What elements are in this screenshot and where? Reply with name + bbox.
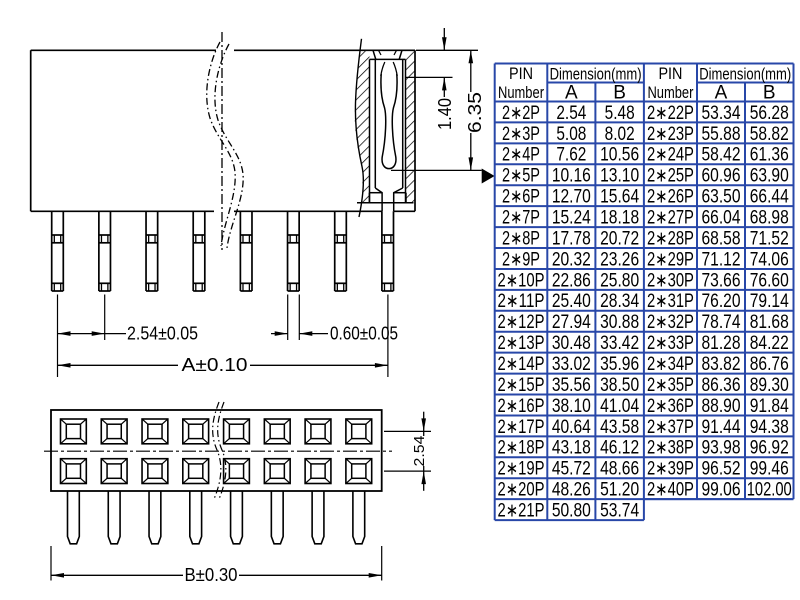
svg-text:86.36: 86.36: [702, 375, 741, 396]
svg-text:2∗25P: 2∗25P: [647, 166, 694, 187]
svg-text:2∗21P: 2∗21P: [498, 501, 545, 522]
svg-text:99.06: 99.06: [702, 480, 741, 501]
svg-text:8.02: 8.02: [605, 124, 635, 145]
svg-text:2∗30P: 2∗30P: [647, 270, 694, 291]
svg-text:38.10: 38.10: [552, 396, 591, 417]
svg-text:2∗39P: 2∗39P: [647, 459, 694, 480]
svg-text:68.98: 68.98: [750, 207, 789, 228]
svg-text:22.86: 22.86: [552, 270, 591, 291]
svg-text:2.54±0.05: 2.54±0.05: [127, 324, 198, 344]
svg-text:20.32: 20.32: [552, 249, 591, 270]
svg-text:2∗29P: 2∗29P: [647, 249, 694, 270]
svg-text:23.26: 23.26: [600, 249, 639, 270]
svg-text:73.66: 73.66: [702, 270, 741, 291]
svg-text:2∗3P: 2∗3P: [502, 124, 540, 145]
svg-text:2∗15P: 2∗15P: [498, 375, 545, 396]
svg-text:15.24: 15.24: [552, 207, 591, 228]
svg-text:43.18: 43.18: [552, 438, 591, 459]
svg-text:B: B: [613, 83, 626, 104]
svg-text:2.54: 2.54: [556, 103, 586, 124]
svg-text:56.28: 56.28: [750, 103, 789, 124]
svg-text:Number: Number: [647, 83, 693, 102]
svg-text:17.78: 17.78: [552, 228, 591, 249]
svg-text:2∗23P: 2∗23P: [647, 124, 694, 145]
svg-text:2∗14P: 2∗14P: [498, 354, 545, 375]
svg-text:2∗37P: 2∗37P: [647, 417, 694, 438]
svg-text:102.00: 102.00: [747, 480, 792, 501]
svg-text:Dimension(mm): Dimension(mm): [699, 64, 791, 83]
svg-text:2∗26P: 2∗26P: [647, 187, 694, 208]
svg-text:2∗27P: 2∗27P: [647, 207, 694, 228]
svg-text:18.18: 18.18: [600, 207, 639, 228]
svg-text:PIN: PIN: [658, 64, 682, 83]
svg-text:46.12: 46.12: [600, 438, 639, 459]
svg-text:2∗6P: 2∗6P: [502, 187, 540, 208]
svg-text:58.42: 58.42: [702, 145, 741, 166]
svg-text:7.62: 7.62: [556, 145, 586, 166]
svg-text:2∗38P: 2∗38P: [647, 438, 694, 459]
svg-text:A: A: [565, 83, 578, 104]
svg-text:A: A: [715, 83, 728, 104]
svg-text:25.40: 25.40: [552, 291, 591, 312]
svg-text:43.58: 43.58: [600, 417, 639, 438]
svg-text:12.70: 12.70: [552, 187, 591, 208]
svg-text:35.96: 35.96: [600, 354, 639, 375]
svg-text:66.44: 66.44: [750, 187, 789, 208]
svg-text:83.82: 83.82: [702, 354, 741, 375]
svg-text:2∗24P: 2∗24P: [647, 145, 694, 166]
svg-text:2∗17P: 2∗17P: [498, 417, 545, 438]
svg-text:33.02: 33.02: [552, 354, 591, 375]
svg-text:B±0.30: B±0.30: [185, 565, 238, 585]
svg-text:B: B: [763, 83, 776, 104]
svg-text:78.74: 78.74: [702, 312, 741, 333]
svg-text:27.94: 27.94: [552, 312, 591, 333]
svg-text:2∗33P: 2∗33P: [647, 333, 694, 354]
svg-text:2∗35P: 2∗35P: [647, 375, 694, 396]
svg-text:88.90: 88.90: [702, 396, 741, 417]
svg-text:93.98: 93.98: [702, 438, 741, 459]
svg-text:Number: Number: [498, 83, 544, 102]
svg-text:30.88: 30.88: [600, 312, 639, 333]
svg-text:91.84: 91.84: [750, 396, 789, 417]
svg-text:2.54: 2.54: [411, 436, 428, 467]
svg-text:2∗16P: 2∗16P: [498, 396, 545, 417]
svg-text:6.35: 6.35: [465, 92, 485, 133]
svg-text:2∗7P: 2∗7P: [502, 207, 540, 228]
svg-text:2∗32P: 2∗32P: [647, 312, 694, 333]
svg-text:53.34: 53.34: [702, 103, 741, 124]
svg-text:5.48: 5.48: [605, 103, 635, 124]
svg-text:60.96: 60.96: [702, 166, 741, 187]
svg-text:40.64: 40.64: [552, 417, 591, 438]
svg-text:2∗20P: 2∗20P: [498, 480, 545, 501]
svg-text:2∗4P: 2∗4P: [502, 145, 540, 166]
svg-text:51.20: 51.20: [600, 480, 639, 501]
svg-text:1.40: 1.40: [435, 98, 455, 130]
svg-text:94.38: 94.38: [750, 417, 789, 438]
svg-text:86.76: 86.76: [750, 354, 789, 375]
svg-text:66.04: 66.04: [702, 207, 741, 228]
svg-text:2∗34P: 2∗34P: [647, 354, 694, 375]
svg-text:Dimension(mm): Dimension(mm): [550, 64, 642, 83]
svg-text:38.50: 38.50: [600, 375, 639, 396]
svg-text:A±0.10: A±0.10: [182, 355, 248, 375]
svg-text:58.82: 58.82: [750, 124, 789, 145]
svg-text:20.72: 20.72: [600, 228, 639, 249]
svg-text:61.36: 61.36: [750, 145, 789, 166]
svg-text:63.90: 63.90: [750, 166, 789, 187]
svg-text:96.92: 96.92: [750, 438, 789, 459]
svg-text:76.60: 76.60: [750, 270, 789, 291]
svg-text:2∗28P: 2∗28P: [647, 228, 694, 249]
svg-text:10.16: 10.16: [552, 166, 591, 187]
svg-text:79.14: 79.14: [750, 291, 789, 312]
svg-text:2∗36P: 2∗36P: [647, 396, 694, 417]
svg-text:30.48: 30.48: [552, 333, 591, 354]
svg-text:41.04: 41.04: [600, 396, 639, 417]
svg-text:2∗10P: 2∗10P: [498, 270, 545, 291]
svg-text:81.28: 81.28: [702, 333, 741, 354]
svg-text:99.46: 99.46: [750, 459, 789, 480]
svg-text:2∗12P: 2∗12P: [498, 312, 545, 333]
svg-text:76.20: 76.20: [702, 291, 741, 312]
svg-text:2∗9P: 2∗9P: [502, 249, 540, 270]
svg-text:2∗11P: 2∗11P: [498, 291, 545, 312]
svg-text:55.88: 55.88: [702, 124, 741, 145]
svg-text:63.50: 63.50: [702, 187, 741, 208]
svg-text:PIN: PIN: [509, 64, 533, 83]
svg-text:10.56: 10.56: [600, 145, 639, 166]
svg-text:71.52: 71.52: [750, 228, 789, 249]
svg-text:28.34: 28.34: [600, 291, 639, 312]
svg-text:2∗2P: 2∗2P: [502, 103, 540, 124]
svg-text:89.30: 89.30: [750, 375, 789, 396]
svg-text:2∗19P: 2∗19P: [498, 459, 545, 480]
svg-text:96.52: 96.52: [702, 459, 741, 480]
svg-text:5.08: 5.08: [556, 124, 586, 145]
svg-text:91.44: 91.44: [702, 417, 741, 438]
svg-text:53.74: 53.74: [600, 501, 639, 522]
svg-text:2∗18P: 2∗18P: [498, 438, 545, 459]
svg-text:48.26: 48.26: [552, 480, 591, 501]
svg-text:2∗22P: 2∗22P: [647, 103, 694, 124]
svg-text:71.12: 71.12: [702, 249, 741, 270]
svg-text:81.68: 81.68: [750, 312, 789, 333]
svg-text:2∗8P: 2∗8P: [502, 228, 540, 249]
svg-text:48.66: 48.66: [600, 459, 639, 480]
svg-text:2∗5P: 2∗5P: [502, 166, 540, 187]
svg-text:25.80: 25.80: [600, 270, 639, 291]
svg-text:2∗40P: 2∗40P: [647, 480, 694, 501]
svg-text:45.72: 45.72: [552, 459, 591, 480]
svg-text:74.06: 74.06: [750, 249, 789, 270]
svg-text:2∗31P: 2∗31P: [647, 291, 694, 312]
svg-text:15.64: 15.64: [600, 187, 639, 208]
svg-text:35.56: 35.56: [552, 375, 591, 396]
svg-text:68.58: 68.58: [702, 228, 741, 249]
svg-text:84.22: 84.22: [750, 333, 789, 354]
svg-text:13.10: 13.10: [600, 166, 639, 187]
svg-text:2∗13P: 2∗13P: [498, 333, 545, 354]
svg-text:33.42: 33.42: [600, 333, 639, 354]
svg-text:50.80: 50.80: [552, 501, 591, 522]
svg-text:0.60±0.05: 0.60±0.05: [330, 324, 398, 344]
